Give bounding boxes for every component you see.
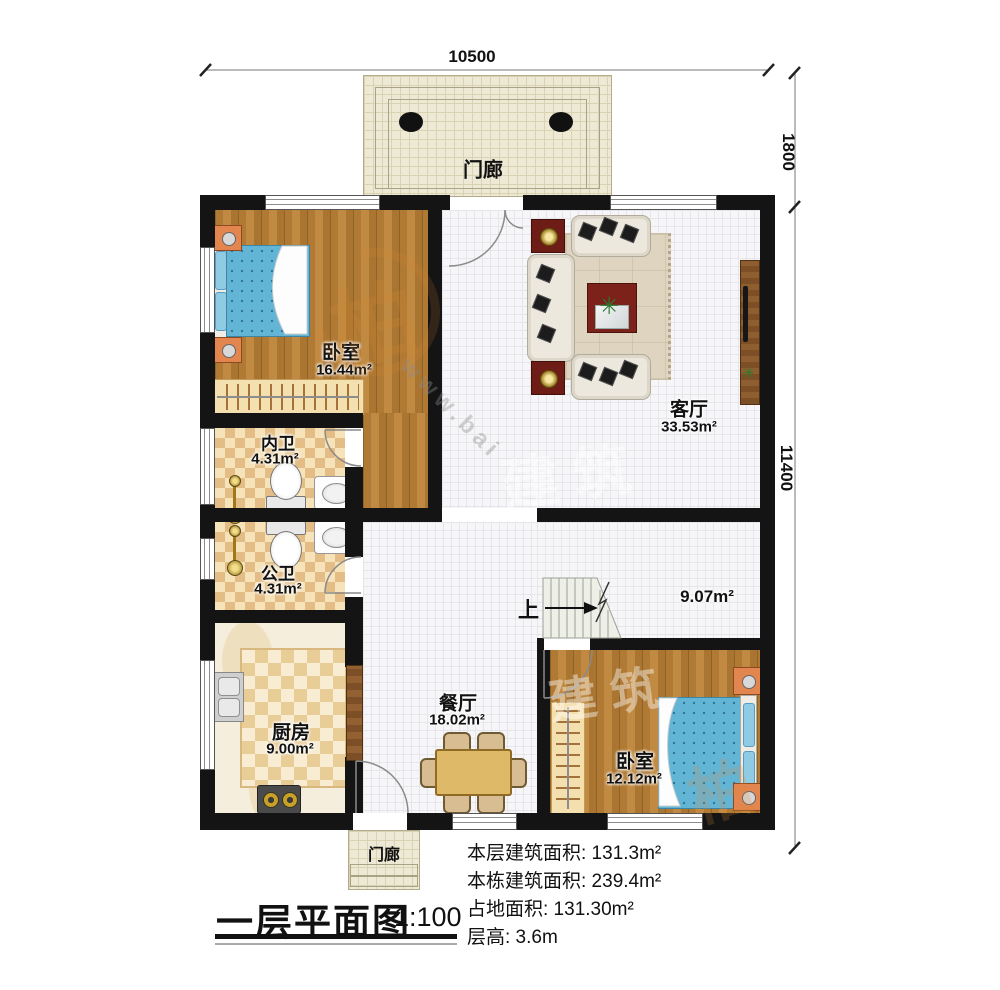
window-icon	[200, 247, 215, 333]
nightstand-icon	[213, 337, 242, 363]
stairs-up-label: 上	[518, 594, 539, 624]
room-area-kitchen: 9.00m²	[266, 741, 314, 758]
wardrobe-icon	[212, 379, 364, 415]
nightstand-icon	[733, 667, 762, 695]
nightstand-icon	[733, 783, 762, 811]
room-label-bedroom2: 卧室	[616, 747, 654, 774]
nightstand-icon	[213, 225, 242, 251]
plant-icon: ✳	[742, 366, 755, 381]
kitchen-door-icon	[346, 665, 363, 761]
room-label-bedroom1: 卧室	[322, 338, 360, 365]
room-label-porch-bottom: 门廊	[368, 841, 400, 865]
shower-knob	[227, 560, 243, 576]
window-icon	[265, 195, 380, 210]
room-label-living: 客厅	[670, 395, 708, 422]
porch-column-icon	[399, 112, 423, 132]
bed-pillow	[743, 703, 755, 747]
info-floor-area: 本层建筑面积: 131.3m²	[467, 838, 661, 865]
window-icon	[607, 813, 703, 830]
dining-table-icon	[435, 749, 512, 796]
window-icon	[610, 195, 717, 210]
floor-plan-canvas: ✳ ✳	[0, 0, 1000, 990]
dim-top-width: 10500	[427, 47, 517, 67]
dim-right-lower: 11400	[776, 423, 796, 513]
toilet-bowl	[270, 462, 302, 500]
stove-icon	[257, 785, 301, 814]
room-area-living: 33.53m²	[661, 419, 717, 436]
bed-icon	[226, 245, 310, 337]
info-footprint-area: 占地面积: 131.30m²	[467, 894, 634, 921]
title-underline	[215, 934, 457, 939]
kitchen-sink-icon	[214, 672, 244, 722]
porch-bottom-step	[350, 864, 418, 876]
lamp-table-icon	[531, 361, 565, 395]
plant-icon: ✳	[599, 295, 619, 319]
lamp-table-icon	[531, 219, 565, 253]
window-icon	[200, 660, 215, 770]
room-area-dining: 18.02m²	[429, 712, 485, 729]
window-icon	[200, 428, 215, 505]
room-area-bedroom1: 16.44m²	[316, 362, 372, 379]
tv-icon	[743, 286, 748, 342]
porch-column-icon	[549, 112, 573, 132]
shower-knob	[229, 475, 241, 487]
title-scale: 1:100	[394, 902, 462, 933]
hall-floor	[537, 522, 760, 638]
dim-right-upper: 1800	[778, 107, 798, 197]
porch-bottom-step2	[350, 876, 418, 887]
window-icon	[200, 538, 215, 580]
info-storey-height: 层高: 3.6m	[467, 922, 558, 949]
title-underline-thin	[215, 943, 457, 945]
window-icon	[452, 813, 517, 830]
shower-knob	[229, 525, 241, 537]
room-area-bath-inner: 4.31m²	[251, 451, 299, 468]
wardrobe-icon	[551, 702, 585, 814]
bed-icon	[658, 697, 742, 809]
info-building-area: 本栋建筑面积: 239.4m²	[467, 866, 661, 893]
room-area-bath-public: 4.31m²	[254, 581, 302, 598]
bath-vestibule-floor	[363, 413, 428, 508]
room-label-porch-top: 门廊	[463, 154, 503, 183]
room-area-hall: 9.07m²	[680, 587, 734, 607]
room-area-bedroom2: 12.12m²	[606, 771, 662, 788]
